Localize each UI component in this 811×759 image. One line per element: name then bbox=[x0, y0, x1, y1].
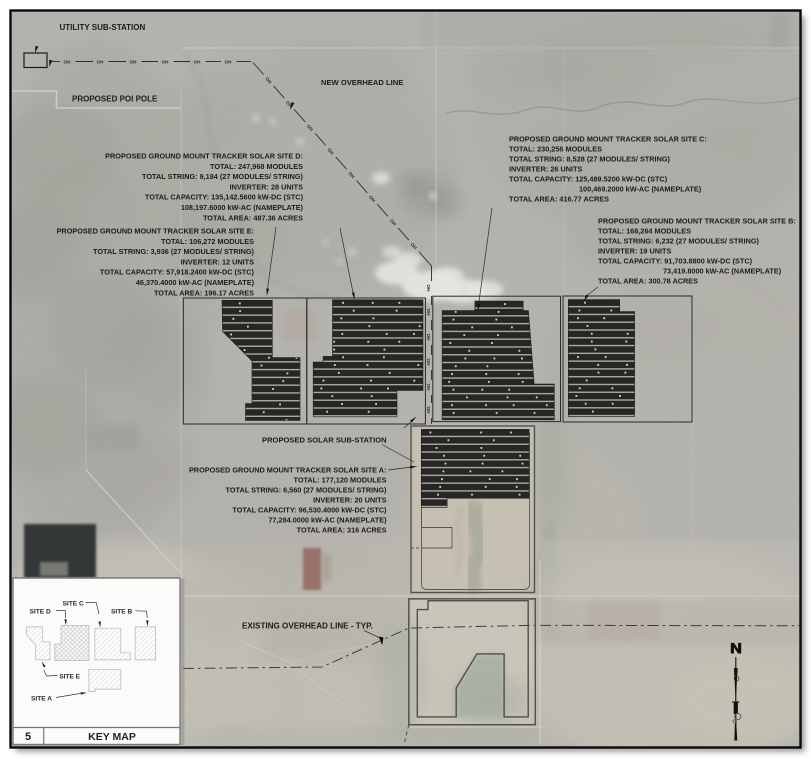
svg-text:OH: OH bbox=[426, 384, 431, 392]
svg-text:46,370.4000 kW-AC (NAMEPLATE): 46,370.4000 kW-AC (NAMEPLATE) bbox=[136, 278, 255, 287]
svg-text:PROPOSED GROUND MOUNT TRACKER: PROPOSED GROUND MOUNT TRACKER SOLAR SITE… bbox=[105, 152, 303, 161]
svg-text:OH: OH bbox=[426, 334, 431, 342]
svg-text:OH: OH bbox=[426, 407, 431, 415]
svg-text:TOTAL CAPACITY: 96,530.4000 kW: TOTAL CAPACITY: 96,530.4000 kW-DC (STC) bbox=[232, 506, 387, 515]
svg-text:TOTAL AREA: 300.78 ACRES: TOTAL AREA: 300.78 ACRES bbox=[598, 277, 698, 286]
svg-text:INVERTER: 12 UNITS: INVERTER: 12 UNITS bbox=[181, 257, 255, 266]
svg-text:TOTAL STRING: 8,528 (27 MODULE: TOTAL STRING: 8,528 (27 MODULES/ STRING) bbox=[509, 155, 671, 164]
svg-text:SITE E: SITE E bbox=[59, 673, 80, 680]
svg-text:INVERTER: 19 UNITS: INVERTER: 19 UNITS bbox=[598, 247, 672, 256]
svg-text:OH: OH bbox=[225, 60, 233, 65]
svg-text:TOTAL: 230,256 MODULES: TOTAL: 230,256 MODULES bbox=[509, 145, 602, 154]
svg-text:PROPOSED GROUND MOUNT TRACKER: PROPOSED GROUND MOUNT TRACKER SOLAR SITE… bbox=[57, 227, 254, 236]
svg-text:108,197.6000 kW-AC (NAMEPLATE): 108,197.6000 kW-AC (NAMEPLATE) bbox=[181, 203, 304, 212]
svg-text:SITE A: SITE A bbox=[31, 695, 52, 702]
svg-text:77,284.0000 kW-AC (NAMEPLATE): 77,284.0000 kW-AC (NAMEPLATE) bbox=[268, 516, 387, 525]
svg-text:OH: OH bbox=[426, 285, 431, 293]
svg-text:PROPOSED GROUND MOUNT TRACKER: PROPOSED GROUND MOUNT TRACKER SOLAR SITE… bbox=[189, 466, 387, 475]
svg-text:OH: OH bbox=[194, 60, 202, 65]
svg-text:PROPOSED GROUND MOUNT TRACKER: PROPOSED GROUND MOUNT TRACKER SOLAR SITE… bbox=[509, 135, 707, 144]
svg-text:INVERTER: 28 UNITS: INVERTER: 28 UNITS bbox=[230, 182, 304, 191]
svg-text:TOTAL AREA: 196.17 ACRES: TOTAL AREA: 196.17 ACRES bbox=[154, 288, 254, 297]
svg-text:INVERTER: 26 UNITS: INVERTER: 26 UNITS bbox=[509, 165, 583, 174]
svg-text:100,469.2000 kW-AC (NAMEPLATE): 100,469.2000 kW-AC (NAMEPLATE) bbox=[579, 185, 702, 194]
svg-text:OH: OH bbox=[426, 359, 431, 367]
svg-text:OH: OH bbox=[64, 60, 72, 65]
svg-text:73,419.8000 kW-AC (NAMEPLATE): 73,419.8000 kW-AC (NAMEPLATE) bbox=[663, 267, 782, 276]
svg-text:INVERTER: 20 UNITS: INVERTER: 20 UNITS bbox=[313, 496, 387, 505]
svg-text:SITE C: SITE C bbox=[63, 601, 84, 608]
svg-text:SITE B: SITE B bbox=[111, 609, 132, 616]
svg-text:TOTAL: 168,264 MODULES: TOTAL: 168,264 MODULES bbox=[598, 227, 691, 236]
svg-text:OH: OH bbox=[97, 60, 105, 65]
svg-text:TOTAL STRING: 6,560 (27 MODULE: TOTAL STRING: 6,560 (27 MODULES/ STRING) bbox=[226, 486, 388, 495]
svg-text:EXISTING OVERHEAD LINE - TYP.: EXISTING OVERHEAD LINE - TYP. bbox=[242, 622, 373, 631]
svg-text:TOTAL: 106,272 MODULES: TOTAL: 106,272 MODULES bbox=[161, 237, 254, 246]
svg-text:TOTAL AREA: 316 ACRES: TOTAL AREA: 316 ACRES bbox=[297, 526, 387, 535]
svg-text:PROPOSED GROUND MOUNT TRACKER: PROPOSED GROUND MOUNT TRACKER SOLAR SITE… bbox=[598, 217, 796, 226]
svg-text:TOTAL CAPACITY: 125,489.5200 k: TOTAL CAPACITY: 125,489.5200 kW-DC (STC) bbox=[509, 175, 668, 184]
svg-text:OH: OH bbox=[162, 60, 170, 65]
svg-text:TOTAL AREA: 416.77 ACRES: TOTAL AREA: 416.77 ACRES bbox=[509, 195, 609, 204]
svg-text:TOTAL: 247,968 MODULES: TOTAL: 247,968 MODULES bbox=[210, 162, 303, 171]
svg-text:OH: OH bbox=[130, 60, 138, 65]
svg-text:KEY MAP: KEY MAP bbox=[88, 731, 136, 743]
svg-text:UTILITY SUB-STATION: UTILITY SUB-STATION bbox=[60, 23, 146, 32]
svg-text:PROPOSED POI POLE: PROPOSED POI POLE bbox=[72, 95, 158, 104]
svg-text:OH: OH bbox=[426, 309, 431, 317]
svg-text:TOTAL AREA: 487.36 ACRES: TOTAL AREA: 487.36 ACRES bbox=[203, 213, 303, 222]
svg-text:TOTAL CAPACITY: 91,703.8800 kW: TOTAL CAPACITY: 91,703.8800 kW-DC (STC) bbox=[598, 257, 753, 266]
svg-text:NEW OVERHEAD LINE: NEW OVERHEAD LINE bbox=[321, 78, 403, 87]
svg-text:TOTAL CAPACITY: 57,918.2400 kW: TOTAL CAPACITY: 57,918.2400 kW-DC (STC) bbox=[100, 268, 255, 277]
svg-text:TOTAL STRING: 6,232 (27 MODULE: TOTAL STRING: 6,232 (27 MODULES/ STRING) bbox=[598, 237, 760, 246]
svg-text:TOTAL STRING: 9,184 (27 MODULE: TOTAL STRING: 9,184 (27 MODULES/ STRING) bbox=[142, 172, 304, 181]
svg-text:PROPOSED SOLAR SUB-STATION: PROPOSED SOLAR SUB-STATION bbox=[262, 436, 387, 445]
svg-text:5: 5 bbox=[25, 731, 31, 743]
svg-text:TOTAL STRING: 3,936 (27 MODULE: TOTAL STRING: 3,936 (27 MODULES/ STRING) bbox=[93, 247, 255, 256]
svg-text:TOTAL: 177,120 MODULES: TOTAL: 177,120 MODULES bbox=[294, 476, 387, 485]
svg-text:TOTAL CAPACITY: 135,142.5600 k: TOTAL CAPACITY: 135,142.5600 kW-DC (STC) bbox=[145, 193, 304, 202]
svg-text:SITE D: SITE D bbox=[30, 609, 51, 616]
